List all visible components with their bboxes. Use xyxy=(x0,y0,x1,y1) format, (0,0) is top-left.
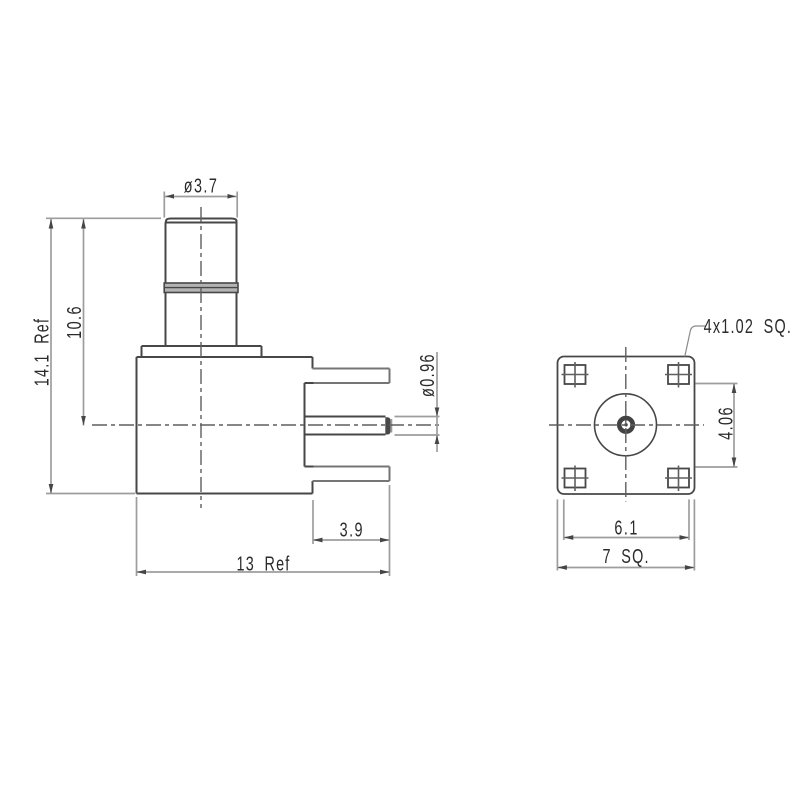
svg-text:14.1 Ref: 14.1 Ref xyxy=(30,318,53,386)
svg-text:7 SQ.: 7 SQ. xyxy=(602,545,649,568)
svg-text:4.06: 4.06 xyxy=(714,406,737,440)
svg-text:10.6: 10.6 xyxy=(63,305,86,339)
svg-text:ø0.96: ø0.96 xyxy=(416,353,439,397)
svg-text:13 Ref: 13 Ref xyxy=(236,552,290,575)
svg-text:3.9: 3.9 xyxy=(340,518,364,541)
svg-text:4x1.02 SQ.: 4x1.02 SQ. xyxy=(704,314,793,337)
svg-text:ø3.7: ø3.7 xyxy=(184,174,219,197)
svg-text:6.1: 6.1 xyxy=(614,516,638,539)
